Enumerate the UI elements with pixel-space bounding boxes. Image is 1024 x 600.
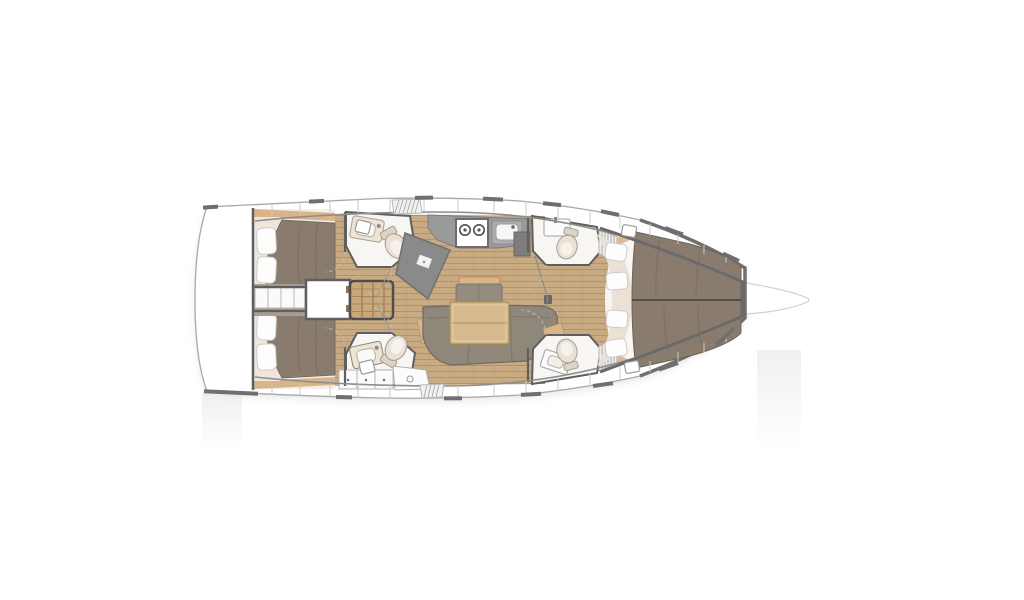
pillow [256, 228, 276, 255]
bow-shadow-band [757, 350, 801, 448]
yacht-floor-plan: sailing-yacht-interior-floor-plan [0, 0, 1024, 600]
pillow [604, 338, 627, 358]
pillow [604, 242, 627, 262]
pillow [606, 310, 628, 328]
hatch [624, 360, 640, 373]
pillow [256, 314, 276, 341]
yacht-floorplan-canvas: sailing-yacht-interior-floor-plan [0, 0, 1024, 600]
pillow [256, 344, 276, 371]
hatch [359, 359, 375, 374]
bowsprit [746, 283, 809, 314]
hatch [355, 219, 371, 234]
stern-shadow-band [202, 393, 242, 451]
companionway-steps [346, 281, 393, 319]
aft-cabin-port [254, 209, 335, 289]
pillow [606, 272, 628, 290]
aft-cabin-starboard [254, 309, 335, 389]
pillow [256, 257, 276, 284]
engine-hatch [306, 280, 350, 319]
hatch [621, 224, 637, 237]
engine-compartment [253, 280, 353, 319]
